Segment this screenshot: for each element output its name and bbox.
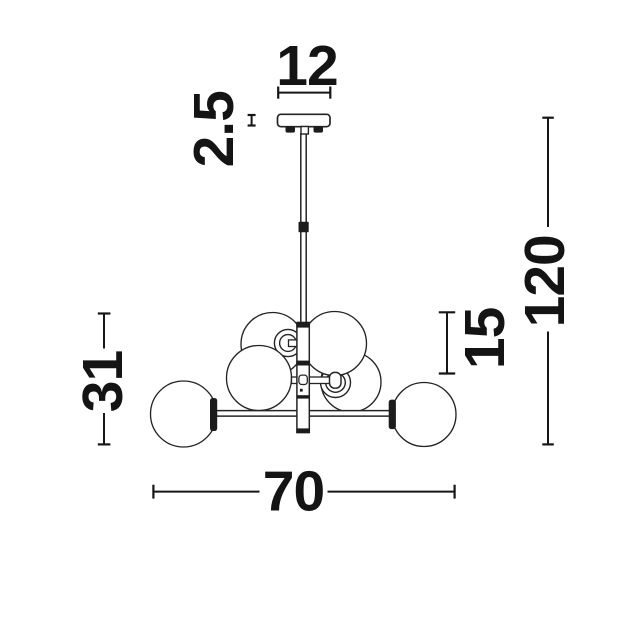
central-body-band-top: [296, 322, 309, 328]
central-body: [296, 322, 309, 433]
suspension-rod: [299, 133, 309, 324]
central-body-band-mid: [296, 361, 309, 366]
dim-label-overall-height: 120: [513, 235, 577, 327]
central-body-band-bottom: [296, 428, 309, 433]
central-body-screw-dot: [300, 389, 303, 392]
technical-drawing-page: 12 2.5 120 15 31 70: [0, 0, 640, 640]
canopy-neck: [301, 127, 308, 135]
middle-arm-elbow: [330, 372, 342, 388]
glass-globe-middle-left: [227, 346, 292, 411]
dim-label-canopy-height: 2.5: [182, 91, 246, 168]
dimension-canopy-width: 12: [276, 34, 337, 99]
glass-globe-upper-right: [303, 312, 367, 376]
arm-connector-right: [389, 400, 396, 430]
dim-label-globe-diameter: 15: [453, 307, 517, 369]
rod-connector-block: [299, 222, 309, 232]
dimension-cluster-height: 31: [71, 314, 135, 445]
canopy-plate: [278, 114, 331, 126]
dimension-overall-height: 120: [513, 118, 577, 445]
central-body-slot: [299, 375, 307, 384]
canopy-foot-right: [314, 126, 324, 133]
dim-label-cluster-height: 31: [71, 351, 135, 413]
dimension-globe-diameter: 15: [439, 307, 517, 373]
canopy-foot-left: [286, 126, 296, 133]
central-body-band-low: [297, 395, 309, 398]
dimension-overall-width: 70: [153, 460, 454, 524]
dim-label-overall-width: 70: [263, 460, 324, 524]
glass-globe-far-left: [151, 381, 217, 447]
ceiling-canopy: [278, 114, 331, 134]
dim-label-canopy-width: 12: [276, 34, 337, 98]
glass-globe-far-right: [392, 383, 456, 447]
dimension-canopy-height: 2.5: [182, 91, 255, 168]
chandelier-dimension-drawing: 12 2.5 120 15 31 70: [0, 0, 640, 640]
arm-connector-left: [210, 398, 217, 431]
